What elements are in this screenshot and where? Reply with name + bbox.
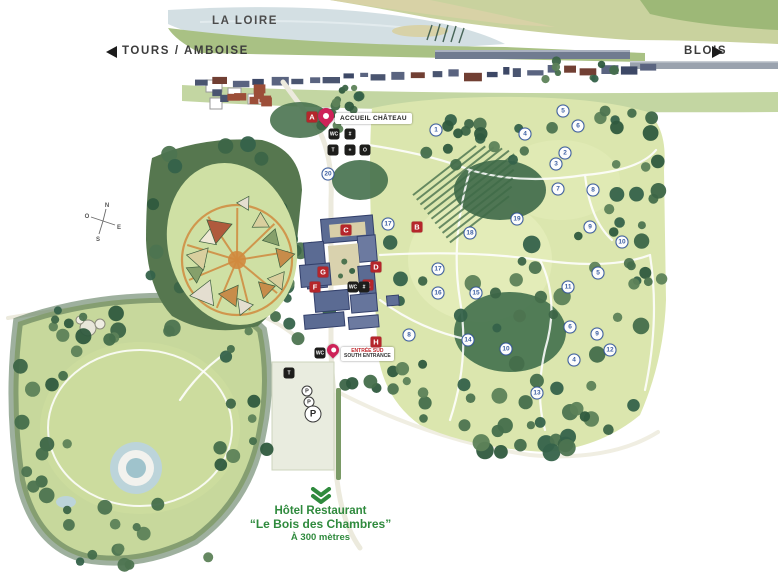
arrow-left-icon: [106, 46, 117, 58]
map-letter-marker-C: C: [341, 225, 352, 236]
map-number-marker-9: 9: [591, 328, 604, 341]
hotel-restaurant-callout: Hôtel Restaurant “Le Bois des Chambres” …: [238, 487, 403, 543]
map-number-marker-3: 3: [550, 158, 563, 171]
compass-rose: N O E S: [80, 198, 126, 244]
hotel-line1: Hôtel Restaurant: [238, 505, 403, 517]
map-number-marker-2: 2: [559, 147, 572, 160]
river-label: LA LOIRE: [212, 15, 278, 27]
map-number-marker-18: 18: [464, 227, 477, 240]
arrow-right-icon: [712, 46, 723, 58]
map-letter-marker-D: D: [371, 262, 382, 273]
map-number-marker-9: 9: [584, 221, 597, 234]
map-number-marker-14: 14: [462, 334, 475, 347]
map-number-marker-7: 7: [552, 183, 565, 196]
map-letter-marker-G: G: [318, 267, 329, 278]
compass-s: S: [96, 237, 100, 243]
compass-o: O: [85, 214, 90, 220]
accueil-chateau-label: ACCUEIL CHÂTEAU: [335, 113, 412, 124]
map-number-marker-10: 10: [500, 343, 513, 356]
map-number-marker-12: 12: [604, 344, 617, 357]
accueil-pin-icon: [315, 105, 338, 128]
parking-marker: P: [305, 406, 322, 423]
map-letter-marker-H: H: [371, 337, 382, 348]
map-number-marker-17: 17: [432, 263, 445, 276]
map-letter-marker-B: B: [412, 222, 423, 233]
map-number-marker-4: 4: [519, 128, 532, 141]
map-number-marker-19: 19: [511, 213, 524, 226]
map-number-marker-10: 10: [616, 236, 629, 249]
south-entrance-pin-icon: [325, 342, 342, 359]
map-number-marker-17: 17: [382, 218, 395, 231]
map-number-marker-8: 8: [403, 329, 416, 342]
map-letter-marker-A: A: [307, 112, 318, 123]
map-number-marker-16: 16: [432, 287, 445, 300]
markers-layer: LA LOIRE TOURS / AMBOISE BLOIS ACCUEIL C…: [0, 0, 778, 583]
picnic-icon: T: [284, 368, 295, 379]
parking-marker: P: [302, 386, 313, 397]
map-number-marker-15: 15: [470, 287, 483, 300]
map-number-marker-13: 13: [531, 387, 544, 400]
hotel-line2: “Le Bois des Chambres”: [238, 517, 403, 531]
park-map: LA LOIRE TOURS / AMBOISE BLOIS ACCUEIL C…: [0, 0, 778, 583]
map-number-marker-6: 6: [564, 321, 577, 334]
tickets-icon: #: [345, 129, 356, 140]
map-letter-marker-F: F: [310, 282, 321, 293]
toilets-icon: WC: [315, 348, 326, 359]
map-number-marker-5: 5: [592, 267, 605, 280]
photo-icon: O: [360, 145, 371, 156]
compass-n: N: [105, 203, 109, 209]
map-number-marker-4: 4: [568, 354, 581, 367]
cloakroom-icon: #: [359, 282, 370, 293]
first-aid-icon: +: [345, 145, 356, 156]
road-west-label: TOURS / AMBOISE: [122, 45, 249, 57]
south-entrance-label: ENTRÉE SUD SOUTH ENTRANCE: [341, 347, 394, 361]
map-number-marker-1: 1: [430, 124, 443, 137]
map-number-marker-5: 5: [557, 105, 570, 118]
toilets-icon: WC: [329, 129, 340, 140]
toilets-icon: WC: [348, 282, 359, 293]
map-number-marker-11: 11: [562, 281, 575, 294]
compass-e: E: [117, 225, 121, 231]
picnic-icon: T: [328, 145, 339, 156]
south-entrance-line2: SOUTH ENTRANCE: [344, 354, 391, 360]
hotel-line3: À 300 mètres: [238, 532, 403, 543]
map-number-marker-8: 8: [587, 184, 600, 197]
map-number-marker-6: 6: [572, 120, 585, 133]
double-chevron-down-icon: [309, 487, 333, 504]
map-number-marker-20: 20: [322, 168, 335, 181]
